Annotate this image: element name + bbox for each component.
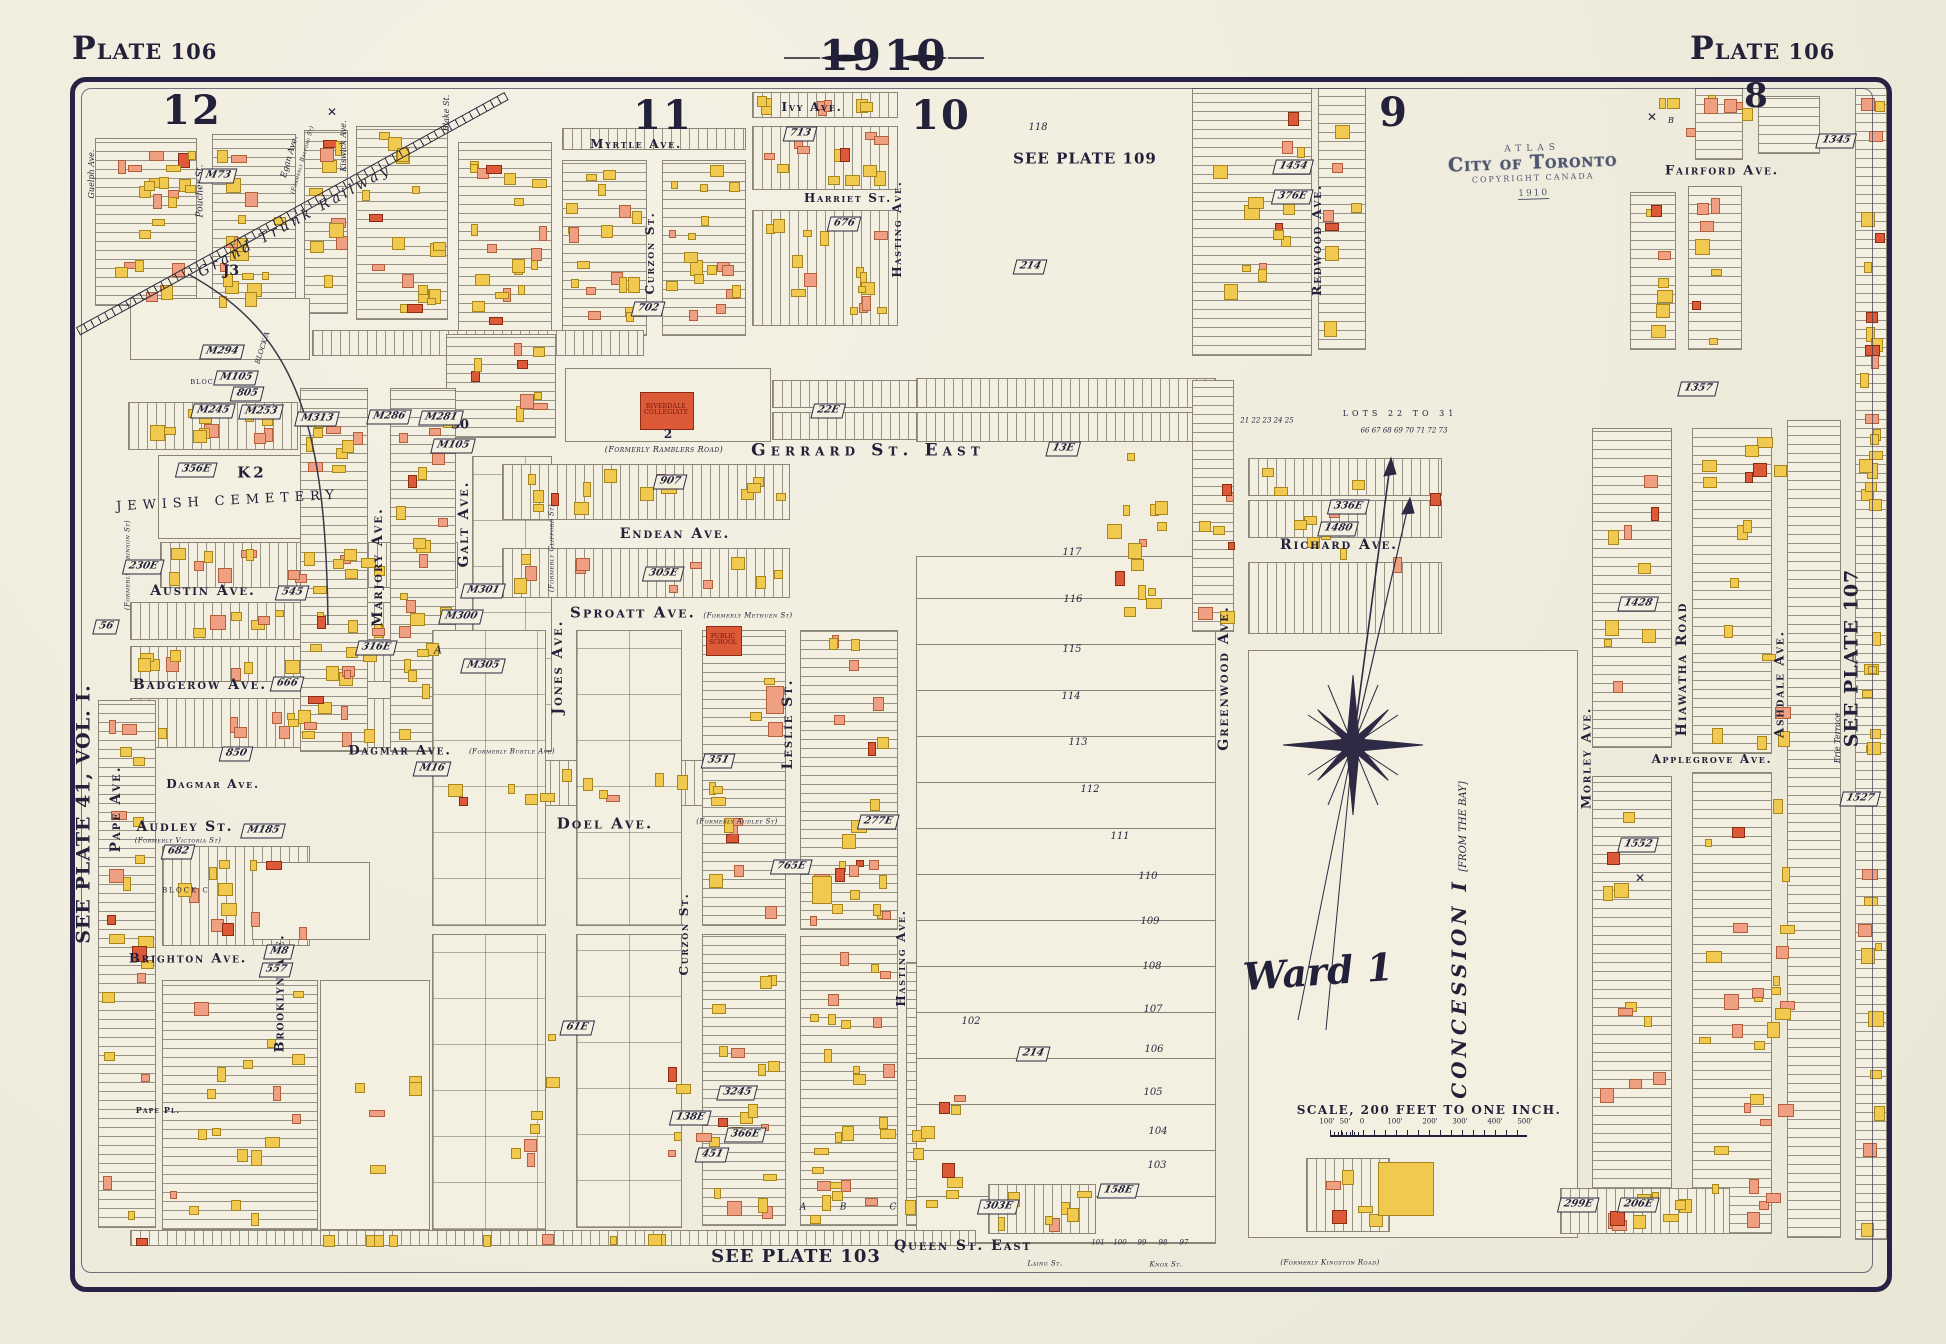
building <box>1213 526 1225 535</box>
building <box>128 165 142 172</box>
building <box>905 1200 916 1215</box>
building <box>1644 1016 1653 1027</box>
building <box>1875 101 1886 112</box>
building <box>562 769 572 782</box>
building <box>1623 812 1636 824</box>
building <box>344 670 351 680</box>
street-label-fairford-ave: Fairford Ave. <box>1665 165 1779 178</box>
plat-marker: M253 <box>238 405 284 420</box>
building <box>323 1235 335 1247</box>
building <box>1323 210 1334 222</box>
building <box>873 904 882 916</box>
building <box>1228 542 1236 550</box>
lot-number: 106 <box>1144 1045 1163 1055</box>
building <box>865 1198 879 1206</box>
survey-mark-icon: ✕ <box>1635 872 1645 884</box>
building <box>1712 728 1724 744</box>
building <box>1866 312 1878 323</box>
building <box>144 181 155 191</box>
building <box>1128 543 1142 558</box>
street-label-laing-st: Laing St. <box>1028 1261 1063 1268</box>
building <box>243 1060 253 1070</box>
building <box>946 1190 959 1199</box>
building <box>292 1114 301 1124</box>
building <box>170 650 181 662</box>
building <box>486 165 501 173</box>
street-label-applegrove-ave: Applegrove Ave. <box>1652 753 1773 765</box>
plat-marker: M300 <box>438 610 484 625</box>
building <box>1638 563 1651 575</box>
lot-number: 108 <box>1142 962 1161 972</box>
building <box>1711 198 1720 214</box>
building <box>1750 1094 1764 1105</box>
building <box>947 1177 963 1188</box>
building <box>251 1213 259 1226</box>
street-label-ivy-ave: Ivy Ave. <box>782 101 843 113</box>
building <box>433 242 446 251</box>
building <box>514 343 521 356</box>
building <box>828 176 840 185</box>
building <box>189 1206 199 1215</box>
building <box>487 244 497 253</box>
building <box>293 991 304 999</box>
block-label-block-c: BLOCK C <box>162 888 210 895</box>
building <box>748 1104 758 1118</box>
building <box>102 992 115 1004</box>
building <box>306 437 313 452</box>
building <box>835 868 845 882</box>
building <box>1273 230 1285 240</box>
building <box>1123 505 1130 515</box>
building <box>406 600 417 613</box>
plat-marker: 557 <box>259 963 294 978</box>
building <box>107 915 117 925</box>
building <box>245 192 257 207</box>
building <box>299 927 307 940</box>
building <box>828 994 839 1006</box>
building <box>1138 585 1146 600</box>
building <box>1352 480 1365 491</box>
building <box>310 644 323 653</box>
building <box>194 561 205 571</box>
building <box>1297 147 1306 158</box>
building <box>514 578 527 594</box>
plat-marker: M313 <box>294 412 340 427</box>
building <box>1714 1146 1730 1155</box>
building <box>711 797 726 807</box>
building <box>1274 487 1289 496</box>
building <box>218 568 232 583</box>
building <box>539 226 548 241</box>
plat-marker: 1428 <box>1617 597 1659 612</box>
building <box>459 797 468 806</box>
building <box>345 569 358 579</box>
building <box>344 549 357 561</box>
building <box>822 1195 831 1211</box>
building <box>841 1020 851 1029</box>
building <box>1651 507 1660 521</box>
building <box>1775 1008 1791 1020</box>
building <box>869 860 880 870</box>
building <box>588 311 601 320</box>
building <box>412 186 421 194</box>
building <box>118 160 126 174</box>
building <box>171 548 186 559</box>
building <box>849 660 859 671</box>
building <box>231 1200 241 1211</box>
building <box>1651 205 1662 218</box>
building <box>1868 666 1877 674</box>
plat-marker: M16 <box>413 762 452 777</box>
building <box>508 784 516 795</box>
building <box>198 1129 207 1140</box>
building <box>1870 729 1881 739</box>
building <box>873 1017 882 1027</box>
building <box>138 658 152 671</box>
building <box>1862 869 1878 880</box>
building <box>868 742 876 756</box>
building <box>1865 482 1877 492</box>
building <box>413 538 427 549</box>
building <box>238 215 246 224</box>
street-label-harriet-st: Harriet St. <box>804 192 892 204</box>
building <box>399 626 411 638</box>
building <box>418 285 429 295</box>
plat-marker: 13E <box>1045 442 1080 457</box>
building <box>576 558 589 571</box>
building <box>768 1061 780 1073</box>
building <box>684 252 698 263</box>
plat-marker: 451 <box>695 1148 730 1163</box>
street-label-sproatt-ave: Sproatt Ave. <box>570 606 696 621</box>
building <box>1157 522 1167 531</box>
plat-marker: 316E <box>355 641 397 656</box>
building <box>764 153 774 160</box>
building <box>1704 98 1718 114</box>
building <box>399 433 408 443</box>
atlas-stamp: ATLAS City of Toronto COPYRIGHT CANADA 1… <box>1447 142 1618 203</box>
building <box>324 275 333 288</box>
section-number-10: 10 <box>911 96 971 136</box>
street-label-myrtle-ave: Myrtle Ave. <box>590 138 682 150</box>
building <box>149 151 164 161</box>
building <box>520 394 535 409</box>
building <box>840 952 849 966</box>
building <box>1864 262 1872 274</box>
building <box>850 307 858 316</box>
building <box>217 150 228 163</box>
building <box>1724 625 1733 638</box>
see-plate-107-label: SEE PLATE 107 <box>1843 569 1862 748</box>
building <box>835 1132 842 1143</box>
plat-marker: 303E <box>977 1200 1019 1215</box>
building <box>245 292 257 307</box>
plat-marker: 805 <box>230 387 265 402</box>
building <box>1747 1212 1760 1228</box>
building <box>619 277 626 292</box>
building <box>364 729 375 744</box>
plat-marker: 366E <box>724 1128 766 1143</box>
building <box>1745 445 1759 457</box>
building <box>712 1004 727 1015</box>
building <box>1608 530 1619 545</box>
building <box>1258 269 1267 282</box>
street-label-curzon-st-north: Curzon St. <box>644 211 656 294</box>
building <box>193 628 206 638</box>
building <box>1861 1223 1875 1237</box>
building <box>814 1148 829 1155</box>
building <box>817 1181 831 1191</box>
building <box>882 911 891 920</box>
lot-number: 118 <box>1028 123 1047 133</box>
building <box>418 467 427 481</box>
building <box>1115 571 1125 586</box>
street-label-richard-ave: Richard Ave. <box>1280 538 1398 552</box>
building <box>853 1074 867 1084</box>
building <box>1633 1215 1646 1229</box>
block-label-j3: J3 <box>223 264 239 278</box>
building <box>689 310 698 322</box>
building <box>410 613 426 626</box>
building <box>258 616 271 625</box>
building <box>707 265 716 275</box>
building <box>408 475 417 488</box>
building <box>408 670 417 682</box>
building <box>159 177 170 190</box>
plat-marker: 907 <box>653 475 688 490</box>
building <box>774 570 783 580</box>
building <box>158 728 167 739</box>
building <box>764 678 775 685</box>
building <box>308 462 323 472</box>
plat-marker: 22E <box>810 404 845 419</box>
building <box>288 719 299 727</box>
building <box>599 790 608 800</box>
building <box>722 265 734 276</box>
building <box>619 205 631 218</box>
building <box>302 731 315 739</box>
plat-marker: 682 <box>161 845 196 860</box>
building <box>518 285 525 295</box>
building <box>242 273 254 280</box>
building <box>883 1064 896 1078</box>
building <box>1749 1179 1759 1194</box>
street-label-ashdale-ave: Ashdale Ave. <box>1774 630 1787 738</box>
building <box>1667 98 1680 109</box>
building <box>304 552 315 566</box>
building <box>1778 1104 1794 1116</box>
building <box>542 1234 555 1245</box>
building <box>168 197 177 208</box>
building <box>776 493 787 502</box>
building <box>308 696 323 704</box>
building <box>1724 994 1739 1010</box>
building <box>694 274 705 284</box>
building <box>137 973 146 983</box>
building <box>921 1126 935 1140</box>
building <box>586 287 596 295</box>
building <box>1686 128 1696 138</box>
building <box>1198 607 1214 620</box>
building <box>279 726 290 739</box>
building <box>1695 239 1710 255</box>
building <box>716 304 726 314</box>
building <box>272 712 281 724</box>
building <box>586 174 597 181</box>
building <box>828 1014 836 1025</box>
building <box>483 1235 491 1247</box>
building <box>1760 1119 1772 1126</box>
building <box>472 301 485 312</box>
building <box>690 562 702 569</box>
riverdale-collegiate-label: RIVERDALE COLLEGIATE <box>644 404 688 416</box>
plat-marker: M305 <box>460 659 506 674</box>
large-building <box>1378 1162 1434 1216</box>
building <box>1213 165 1228 179</box>
plat-marker: M185 <box>240 824 286 839</box>
street-label-marjory-ave: Marjory Ave. <box>371 507 385 627</box>
building <box>998 1217 1006 1231</box>
concession-text: CONCESSION I <box>1447 878 1471 1099</box>
plat-marker: M8 <box>263 945 295 960</box>
survey-mark-icon: ✕ <box>1647 111 1657 123</box>
building <box>254 433 267 444</box>
building <box>1700 221 1714 233</box>
building <box>1870 434 1879 445</box>
building <box>1859 459 1873 473</box>
building <box>1733 923 1748 933</box>
atlas-map-page: PLATE 106 PLATE 106 1910 <box>0 0 1946 1344</box>
block-label-a2: A <box>800 1204 807 1213</box>
building <box>1773 976 1780 986</box>
building <box>304 722 317 731</box>
plat-marker: 850 <box>219 747 254 762</box>
building <box>369 214 383 222</box>
plat-marker: 702 <box>631 302 666 317</box>
building <box>1325 246 1339 261</box>
building <box>1326 1181 1341 1190</box>
building <box>527 1153 536 1167</box>
street-label-endean-ave: Endean Ave. <box>620 527 731 541</box>
building <box>432 453 445 465</box>
plat-marker: 1357 <box>1677 382 1719 397</box>
building <box>840 148 850 162</box>
building <box>701 216 709 226</box>
building <box>419 554 428 568</box>
lot-number: 97 <box>1180 1240 1189 1247</box>
building <box>1332 163 1343 174</box>
building <box>1659 98 1666 108</box>
lot-number: 109 <box>1140 917 1159 927</box>
see-plate-41-label: SEE PLATE 41, VOL. I. <box>75 684 94 944</box>
lot-number: 105 <box>1143 1088 1162 1098</box>
scale-tick: 50' <box>1340 1119 1351 1126</box>
street-label-pape-pl: Pape Pl. <box>136 1106 181 1114</box>
building <box>926 1200 938 1208</box>
building <box>668 1150 676 1157</box>
building <box>870 799 880 811</box>
building <box>313 586 326 594</box>
building <box>1124 607 1136 617</box>
building <box>1658 251 1671 260</box>
building <box>666 281 678 291</box>
street-label-austin-ave: Austin Ave. <box>150 584 256 598</box>
building <box>810 1014 819 1022</box>
building <box>504 173 516 186</box>
block-label-b2: B <box>840 1204 847 1213</box>
block-label-a: A <box>434 645 442 656</box>
building <box>606 795 619 802</box>
scale-tick: 100' <box>1387 1119 1402 1126</box>
building <box>628 277 641 293</box>
building <box>727 1201 742 1216</box>
building <box>700 184 709 192</box>
see-plate-109-label: SEE PLATE 109 <box>1013 152 1157 167</box>
building <box>262 272 269 280</box>
building <box>1610 1211 1625 1226</box>
building <box>1865 345 1879 356</box>
building <box>546 1077 560 1089</box>
building <box>849 865 859 877</box>
lot-number: 98 <box>1159 1240 1168 1247</box>
building <box>534 392 542 400</box>
building <box>747 483 761 494</box>
building <box>804 273 817 287</box>
building <box>511 1148 521 1159</box>
plat-marker: M245 <box>190 404 236 419</box>
building <box>517 360 528 369</box>
building <box>471 224 478 236</box>
building <box>734 865 744 877</box>
building <box>329 223 345 238</box>
building <box>583 778 593 792</box>
lot-number: 114 <box>1061 692 1080 702</box>
building <box>954 1095 967 1102</box>
building <box>1744 1103 1752 1113</box>
building <box>135 260 144 272</box>
street-label-morley-ave: Morley Ave. <box>1581 707 1594 809</box>
building <box>1699 1037 1711 1044</box>
building <box>448 784 463 797</box>
building <box>1624 525 1632 540</box>
building <box>355 1083 365 1093</box>
survey-mark-icon: ✕ <box>327 106 337 118</box>
lot-number: 101 <box>1091 1240 1104 1247</box>
building <box>122 724 137 735</box>
building <box>531 1111 543 1120</box>
building <box>1242 265 1251 273</box>
street-label-curzon-st-south: Curzon St. <box>678 892 690 975</box>
building <box>540 793 555 803</box>
building <box>374 1235 384 1247</box>
lot-number: 100 <box>1113 1240 1126 1247</box>
building <box>871 964 880 973</box>
building <box>850 890 860 900</box>
building <box>212 1128 222 1135</box>
building <box>1875 233 1885 243</box>
building <box>333 559 344 570</box>
building <box>115 267 128 278</box>
building <box>104 1052 116 1062</box>
building <box>577 261 591 270</box>
scale-tick: 100' <box>1319 1119 1334 1126</box>
building <box>139 230 151 239</box>
building <box>222 923 234 936</box>
building <box>246 549 254 561</box>
building <box>1657 290 1673 303</box>
building <box>194 1002 209 1016</box>
building <box>407 304 423 313</box>
